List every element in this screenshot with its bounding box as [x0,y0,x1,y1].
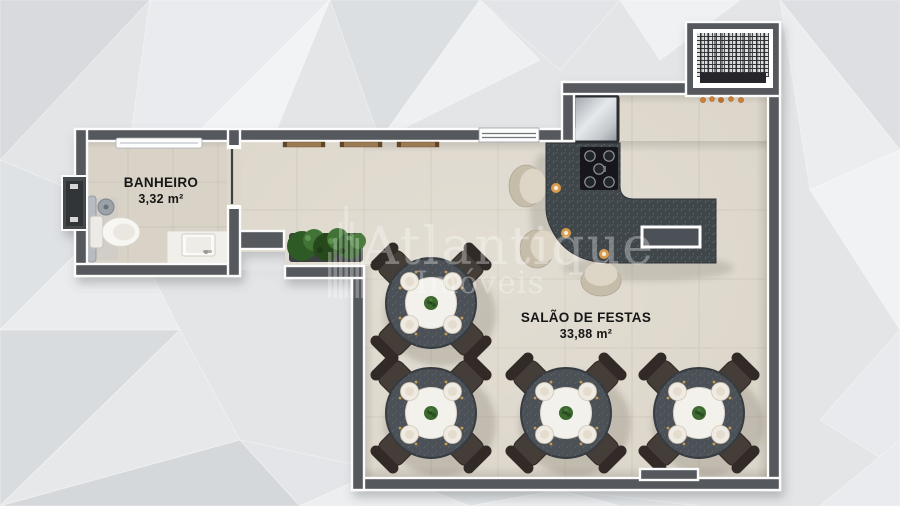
watermark-subtitle: Imóveis [416,265,545,301]
floor-plan-scene: Atlantique Imóveis BANHEIRO 3,32 m² SALÃ… [0,0,900,506]
room-area-salao: 33,88 m² [560,327,612,341]
wall-right [768,94,780,490]
wall-entry-stub [238,231,284,249]
vanity-sink [167,231,232,264]
wall-shelf [283,142,439,147]
planter-plants [287,228,366,262]
room-area-banheiro: 3,32 m² [138,192,183,206]
room-label-banheiro: BANHEIRO [124,175,198,190]
shaft-sill [700,73,766,83]
refrigerator [574,96,618,142]
wall-bottom-notch [640,469,698,480]
dining-table [503,350,631,476]
wall-bath-bottom [75,264,238,276]
wall-salon-left [352,266,364,490]
ventilation-shaft [686,22,780,96]
dining-table [636,350,764,476]
cooktop [580,147,618,190]
salon-window [479,128,539,142]
bathroom-door [227,145,241,209]
room-label-salao: SALÃO DE FESTAS [521,310,651,325]
toilet [90,216,140,248]
bathroom-window [116,138,202,148]
floorplan-render: Atlantique Imóveis BANHEIRO 3,32 m² SALÃ… [0,0,900,506]
wall-bottom [352,478,780,490]
dining-table [368,350,496,476]
wall-kitchen-top [562,82,688,94]
wall-bath-divider-lower [228,206,240,276]
